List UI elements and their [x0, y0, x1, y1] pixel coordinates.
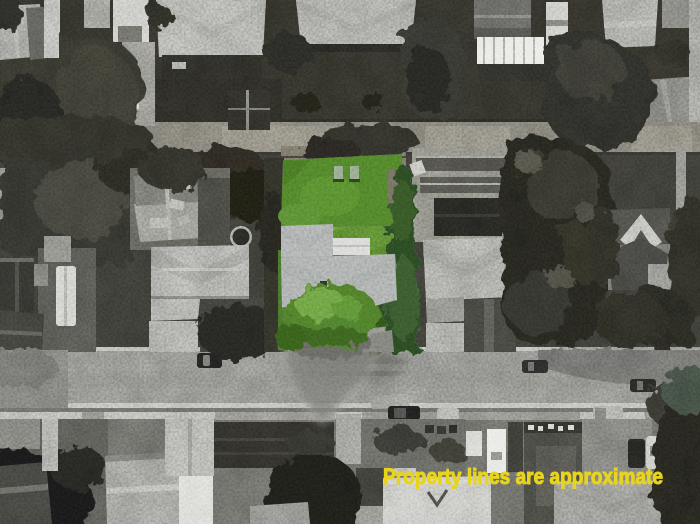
- svg-text:Property lines are approximate: Property lines are approximate: [383, 464, 663, 489]
